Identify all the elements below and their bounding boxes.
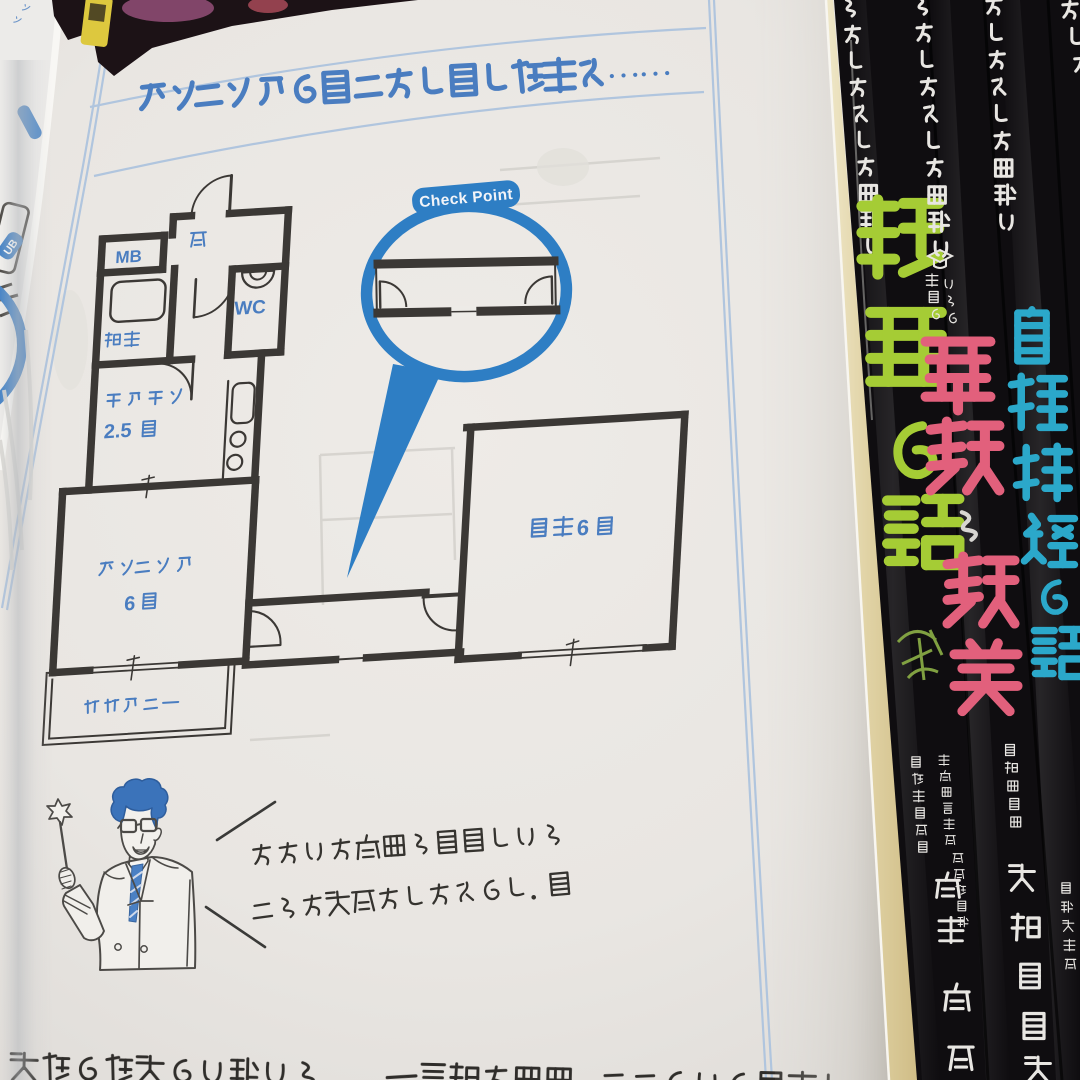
svg-text:6: 6	[124, 593, 136, 616]
svg-text:MB: MB	[115, 247, 142, 268]
svg-text:6: 6	[576, 515, 590, 541]
svg-text:WC: WC	[234, 297, 267, 320]
svg-text:2.5: 2.5	[103, 420, 132, 444]
